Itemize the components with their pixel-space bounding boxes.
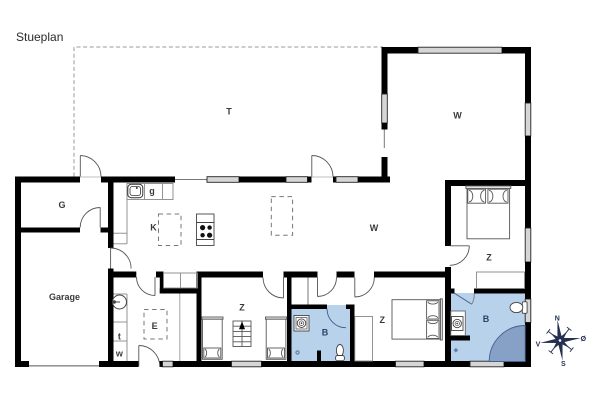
svg-text:g: g <box>149 186 155 196</box>
svg-text:T: T <box>226 107 232 117</box>
svg-text:W: W <box>453 111 462 121</box>
svg-text:B: B <box>322 328 329 338</box>
svg-text:K: K <box>150 223 157 233</box>
svg-text:Stueplan: Stueplan <box>16 30 63 44</box>
svg-text:Ø: Ø <box>581 336 587 343</box>
svg-text:W: W <box>370 223 379 233</box>
svg-text:w: w <box>115 349 124 359</box>
svg-text:Z: Z <box>239 303 245 313</box>
svg-text:Z: Z <box>380 315 386 325</box>
svg-text:G: G <box>58 200 65 210</box>
svg-text:B: B <box>483 314 490 324</box>
svg-text:Z: Z <box>486 253 492 263</box>
svg-text:S: S <box>561 361 566 368</box>
svg-text:V: V <box>536 342 541 349</box>
svg-text:N: N <box>555 316 560 323</box>
svg-text:Garage: Garage <box>49 292 80 302</box>
svg-text:t: t <box>118 332 121 342</box>
svg-text:E: E <box>152 321 158 331</box>
